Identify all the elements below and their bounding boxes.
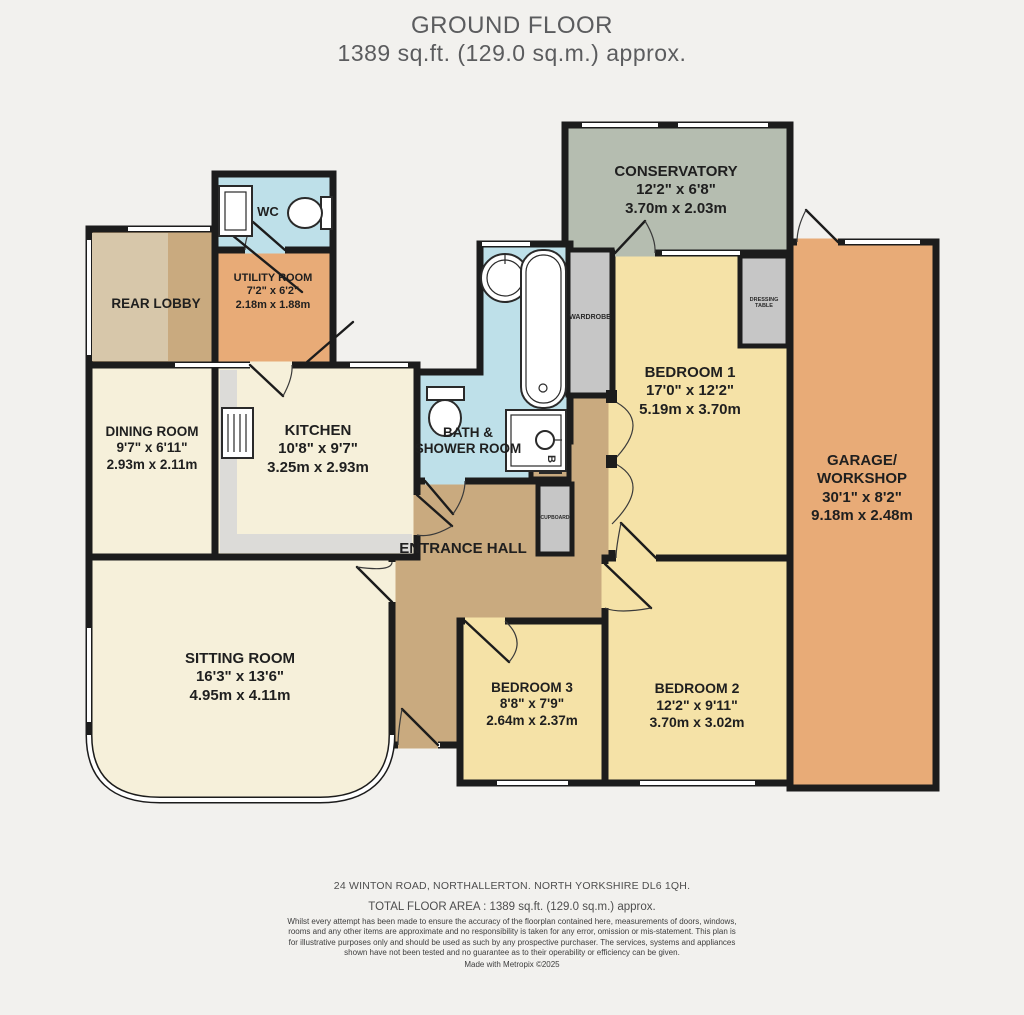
wc-sink-icon: [219, 186, 252, 236]
room-label-sitting: SITTING ROOM 16'3" x 13'6" 4.95m x 4.11m: [185, 650, 295, 705]
room-label-bedroom1: BEDROOM 1 17'0" x 12'2" 5.19m x 3.70m: [639, 364, 741, 419]
room-label-conservatory: CONSERVATORY 12'2" x 6'8" 3.70m x 2.03m: [614, 163, 737, 218]
disclaimer-text: Whilst every attempt has been made to en…: [287, 917, 737, 959]
label-boiler: B: [545, 451, 557, 467]
property-address: 24 WINTON ROAD, NORTHALLERTON. NORTH YOR…: [0, 880, 1024, 892]
room-label-kitchen: KITCHEN 10'8" x 9'7" 3.25m x 2.93m: [267, 422, 369, 477]
wardrobe-box: [568, 250, 612, 395]
disclaimer-block: Whilst every attempt has been made to en…: [0, 917, 1024, 969]
label-dressing-table: DRESSING TABLE: [740, 297, 788, 309]
room-label-bedroom2: BEDROOM 2 12'2" x 9'11" 3.70m x 3.02m: [650, 680, 745, 731]
bath-toilet-tank: [427, 387, 464, 400]
room-label-rear-lobby: REAR LOBBY: [111, 296, 200, 312]
room-label-garage: GARAGE/ WORKSHOP 30'1" x 8'2" 9.18m x 2.…: [811, 452, 913, 525]
kitchen-counter-bottom: [220, 534, 412, 553]
room-label-bath: BATH & SHOWER ROOM: [415, 425, 522, 458]
label-wc: WC: [257, 204, 279, 220]
total-floor-area: TOTAL FLOOR AREA : 1389 sq.ft. (129.0 sq…: [0, 901, 1024, 913]
label-cupboard: CUPBOARD: [538, 515, 572, 521]
made-with-credit: Made with Metropix ©2025: [0, 960, 1024, 969]
wc-toilet-icon: [288, 198, 322, 228]
door-garage: [806, 210, 838, 242]
room-label-bedroom3: BEDROOM 3 8'8" x 7'9" 2.64m x 2.37m: [486, 680, 578, 729]
cooker-icon: [222, 408, 253, 458]
room-label-utility: UTILITY ROOM 7'2" x 6'2" 2.18m x 1.88m: [234, 272, 313, 312]
room-label-dining: DINING ROOM 9'7" x 6'11" 2.93m x 2.11m: [106, 424, 199, 473]
room-label-entrance-hall: ENTRANCE HALL: [399, 540, 527, 558]
label-wardrobe: WARDROBE: [568, 314, 612, 321]
kitchen-counter-left: [220, 370, 237, 552]
